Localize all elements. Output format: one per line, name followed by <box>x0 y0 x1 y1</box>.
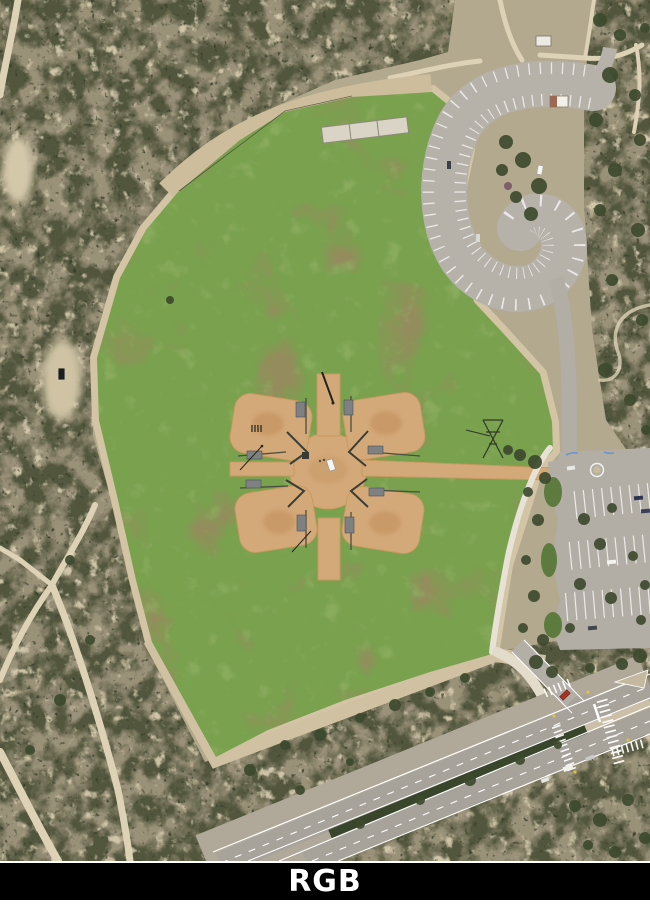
maintenance-vehicle <box>58 368 65 380</box>
restroom-roof <box>550 96 557 107</box>
parked-car <box>447 161 451 169</box>
modality-label: RGB <box>288 863 362 900</box>
figure-panel: RGB <box>0 0 650 904</box>
shade-shelter <box>536 36 551 46</box>
parking-lot <box>541 448 650 650</box>
parked-car <box>476 234 480 242</box>
label-bar: RGB <box>0 863 650 900</box>
aerial-photo <box>0 0 650 861</box>
